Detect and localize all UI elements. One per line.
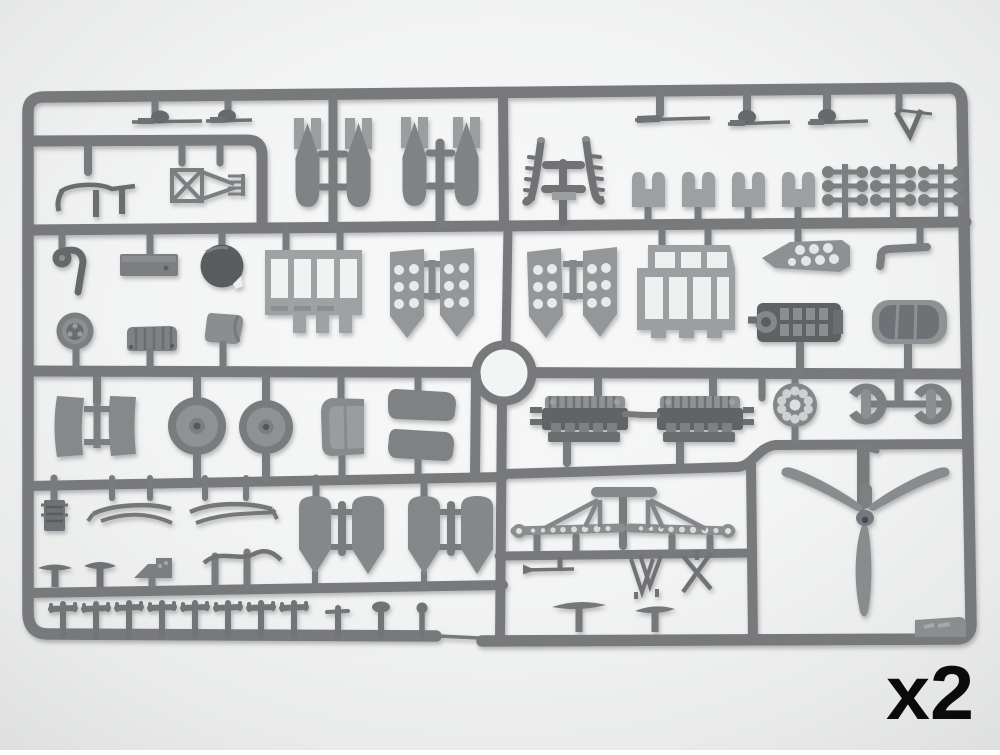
svg-text:x2: x2 [886,651,974,736]
